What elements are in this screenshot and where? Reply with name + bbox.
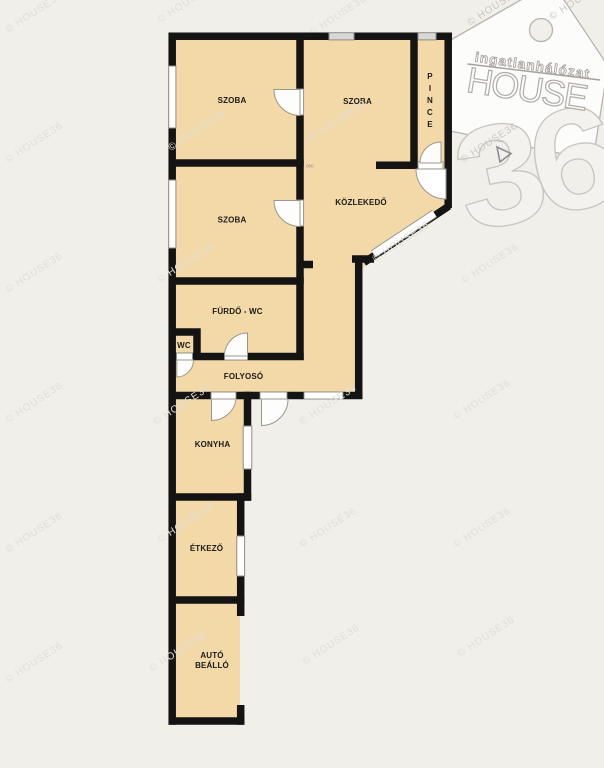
svg-text:SZOBA: SZOBA <box>218 216 247 225</box>
svg-text:C: C <box>427 108 433 117</box>
svg-text:N: N <box>427 96 433 105</box>
svg-text:060: 060 <box>306 164 314 169</box>
svg-text:FOLYOSÓ: FOLYOSÓ <box>224 372 263 381</box>
svg-text:FÜRDŐ - WC: FÜRDŐ - WC <box>212 307 262 316</box>
svg-text:ÉTKEZŐ: ÉTKEZŐ <box>190 544 223 553</box>
svg-text:WC: WC <box>177 341 191 350</box>
svg-text:BEÁLLÓ: BEÁLLÓ <box>195 661 229 670</box>
svg-text:SZOBA: SZOBA <box>218 96 247 105</box>
svg-text:AUTÓ: AUTÓ <box>200 651 223 660</box>
svg-text:KÖZLEKEDŐ: KÖZLEKEDŐ <box>335 198 387 207</box>
svg-text:I: I <box>429 84 431 93</box>
svg-text:KONYHA: KONYHA <box>195 440 231 449</box>
svg-text:E: E <box>427 120 433 129</box>
svg-text:P: P <box>427 72 433 81</box>
